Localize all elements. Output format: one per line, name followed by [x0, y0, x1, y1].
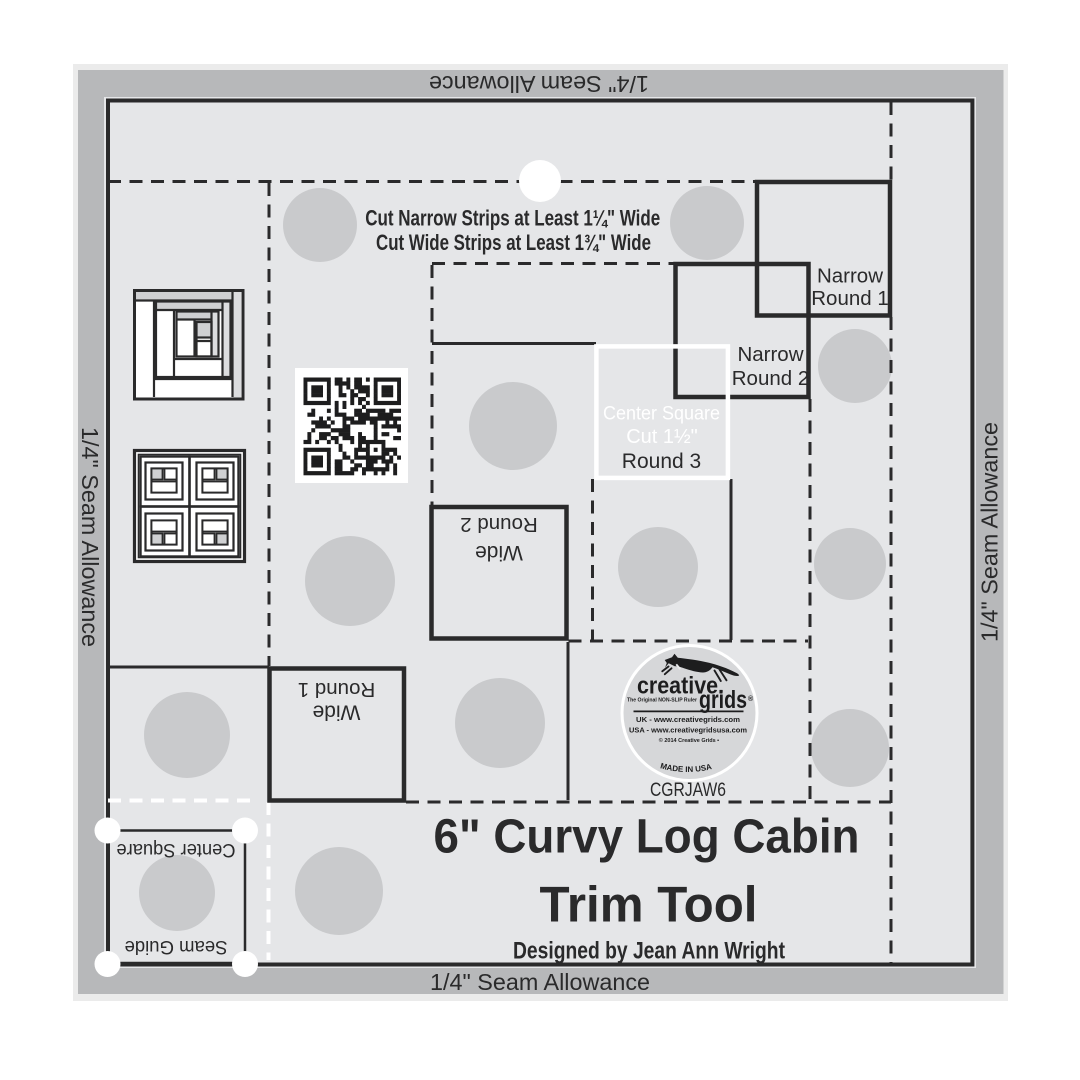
svg-text:Center Square: Center Square [603, 403, 720, 425]
svg-text:Cut Narrow Strips at Least 1¼": Cut Narrow Strips at Least 1¼" Wide [365, 206, 660, 231]
svg-text:© 2014 Creative Grids ▪: © 2014 Creative Grids ▪ [659, 737, 719, 744]
svg-text:Cut Wide Strips at Least 1¾" W: Cut Wide Strips at Least 1¾" Wide [376, 230, 651, 255]
svg-text:Round 2: Round 2 [732, 367, 810, 390]
svg-text:1/4" Seam Allowance: 1/4" Seam Allowance [77, 427, 103, 647]
svg-text:1/4" Seam Allowance: 1/4" Seam Allowance [977, 422, 1003, 642]
svg-text:Cut 1½": Cut 1½" [626, 426, 698, 448]
svg-text:Seam Guide: Seam Guide [125, 936, 228, 957]
svg-text:Designed by Jean Ann Wright: Designed by Jean Ann Wright [513, 938, 785, 965]
svg-text:1/4" Seam Allowance: 1/4" Seam Allowance [430, 969, 650, 995]
svg-text:grids: grids [699, 686, 747, 714]
svg-text:Narrow: Narrow [737, 343, 803, 366]
svg-text:The Original NON-SLIP Ruler: The Original NON-SLIP Ruler [627, 698, 698, 704]
svg-text:USA - www.creativegridsusa.com: USA - www.creativegridsusa.com [629, 726, 747, 735]
svg-text:Narrow: Narrow [817, 265, 883, 288]
svg-text:6" Curvy Log Cabin: 6" Curvy Log Cabin [434, 810, 860, 864]
svg-text:Round 2: Round 2 [460, 513, 538, 536]
svg-text:UK - www.creativegrids.com: UK - www.creativegrids.com [636, 715, 740, 724]
svg-text:Center Square: Center Square [117, 839, 236, 860]
svg-text:CGRJAW6: CGRJAW6 [650, 780, 726, 801]
svg-text:Round 1: Round 1 [811, 287, 889, 310]
svg-text:Round 3: Round 3 [622, 450, 701, 473]
svg-text:Trim Tool: Trim Tool [540, 877, 758, 933]
svg-text:1/4" Seam Allowance: 1/4" Seam Allowance [429, 71, 649, 97]
svg-text:Wide: Wide [475, 541, 523, 564]
svg-text:®: ® [748, 695, 754, 703]
svg-text:Round 1: Round 1 [298, 678, 376, 701]
svg-text:Wide: Wide [313, 701, 361, 724]
